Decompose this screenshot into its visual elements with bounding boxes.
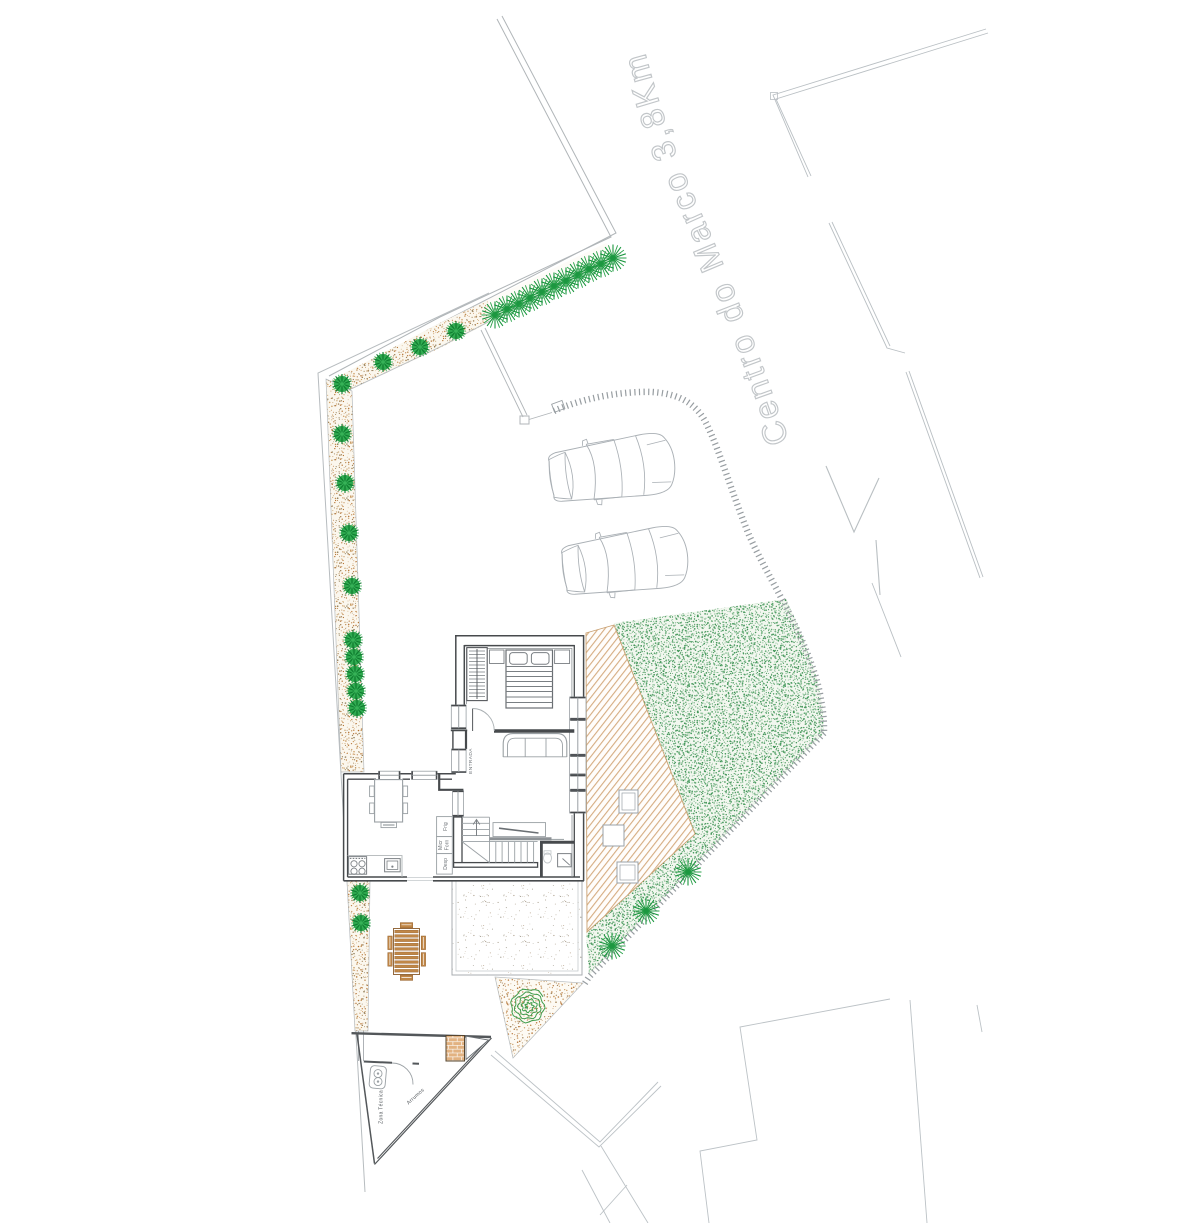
- svg-text:ENTRADA: ENTRADA: [468, 748, 474, 774]
- svg-text:Zona Técnica: Zona Técnica: [379, 1090, 385, 1124]
- svg-text:Desp: Desp: [443, 858, 449, 870]
- svg-text:Micr: Micr: [438, 840, 444, 850]
- svg-text:Forn: Forn: [445, 840, 451, 851]
- svg-text:Frig: Frig: [443, 822, 449, 831]
